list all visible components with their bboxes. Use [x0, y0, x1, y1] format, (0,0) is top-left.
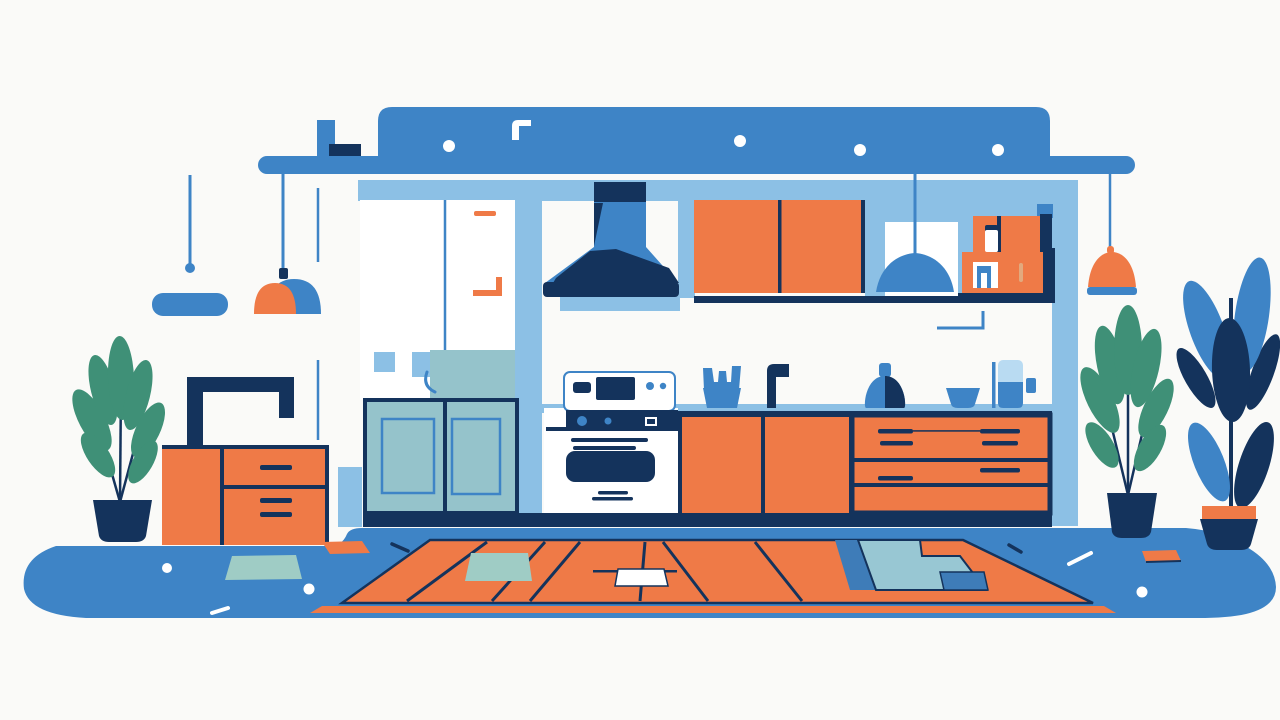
apple-stem: [879, 363, 891, 377]
plant-pot: [93, 500, 152, 542]
hood-light-glow: [560, 296, 680, 311]
upper-cabinet-edge: [861, 200, 865, 293]
floor-dot: [304, 584, 315, 595]
console-dot: [660, 383, 666, 389]
stove-knob: [577, 416, 587, 426]
wall-column-stub: [338, 467, 362, 527]
beam-dot: [854, 144, 866, 156]
sideboard-divider: [220, 449, 224, 545]
cabinet-base-band: [363, 513, 1052, 527]
stove-vent-line: [573, 446, 636, 450]
wall-column: [515, 200, 542, 514]
drawer-divider: [854, 483, 1048, 487]
cabinet-divider: [761, 417, 765, 513]
shelf-slot-handle: [1019, 263, 1023, 282]
frame-top: [187, 377, 294, 392]
hood-base: [543, 282, 679, 297]
drawer-unit: [852, 415, 1050, 513]
teal-cabinet: [365, 400, 517, 513]
stove: [544, 372, 678, 513]
shelf-side-lower: [1043, 248, 1055, 297]
sideboard-side-edge: [325, 445, 329, 545]
beam-dot: [992, 144, 1004, 156]
console-display: [596, 377, 635, 400]
ceiling-beam: [258, 107, 1135, 174]
shelf-box-upper: [973, 216, 1040, 253]
floor-mat-edge: [1146, 561, 1181, 562]
floor-mat-teal: [225, 555, 302, 580]
frame-left: [187, 377, 203, 447]
stove-vent-line: [571, 438, 648, 442]
oven-handle-line: [598, 491, 628, 495]
kitchen-illustration: [0, 0, 1280, 720]
sideboard-handle: [260, 512, 292, 517]
plant-pot: [1107, 493, 1157, 538]
frame-right: [279, 377, 294, 418]
plant-pot-rim: [1202, 506, 1256, 519]
fridge-handle: [474, 211, 496, 216]
floor-dot: [1137, 587, 1148, 598]
floor-dot: [162, 563, 172, 573]
lamp-shade: [152, 293, 228, 316]
teal-cabinet-divider: [443, 400, 447, 513]
drawer-handle: [980, 429, 1020, 434]
control-band-tab: [546, 427, 570, 431]
lamp-connector: [279, 268, 288, 279]
wall-tile: [374, 352, 395, 372]
sideboard-drawer-divider: [224, 485, 325, 489]
teal-cabinet-body: [365, 400, 517, 513]
wall-band: [358, 180, 1078, 201]
beam-dot: [443, 140, 455, 152]
sideboard-body: [162, 449, 325, 545]
wall-column: [678, 200, 695, 298]
drawer-handle: [880, 441, 913, 446]
stove-knob: [605, 418, 612, 425]
beam-block: [378, 107, 1050, 161]
hood-chimney: [594, 202, 646, 249]
lamp-cord-tip: [185, 263, 195, 273]
bottle-lower: [998, 382, 1023, 408]
console-dot: [646, 382, 654, 390]
beam-dot: [734, 135, 746, 147]
console-button: [573, 382, 591, 393]
oven-handle-line: [592, 497, 633, 501]
utensil-cup: [703, 388, 741, 408]
upper-cabinet-divider: [778, 200, 782, 293]
shelf-card-glyph-notch: [981, 273, 987, 288]
drawer-handle: [878, 429, 913, 434]
sideboard-top-edge: [162, 445, 329, 449]
illustration-canvas: [0, 0, 1280, 720]
plant-pot: [1200, 519, 1258, 550]
drawer-divider: [854, 458, 1048, 462]
teal-panel: [430, 350, 515, 401]
oven-door: [566, 451, 655, 482]
jar: [985, 230, 998, 252]
beam-band: [258, 156, 1135, 174]
drawer-handle: [878, 476, 913, 481]
rug-border-band: [310, 606, 1116, 613]
sideboard-handle: [260, 465, 292, 470]
lamp-rim: [1087, 287, 1137, 295]
shelf-bottom-bar: [958, 293, 1055, 303]
refrigerator: [360, 200, 515, 401]
rug-patch-white: [615, 569, 668, 586]
drawer-handle: [980, 468, 1020, 473]
rug-patch-teal: [465, 553, 532, 581]
cutting-board-edge: [992, 362, 996, 408]
hood-chimney-top: [594, 182, 646, 204]
floor-mat-orange: [322, 541, 370, 554]
cabinet-edge: [678, 411, 682, 513]
drawer-hairline: [913, 430, 980, 432]
sideboard-handle: [260, 498, 292, 503]
drawer-handle: [982, 441, 1018, 446]
rug-patch-blue-small: [940, 572, 988, 590]
small-box: [1026, 378, 1036, 393]
